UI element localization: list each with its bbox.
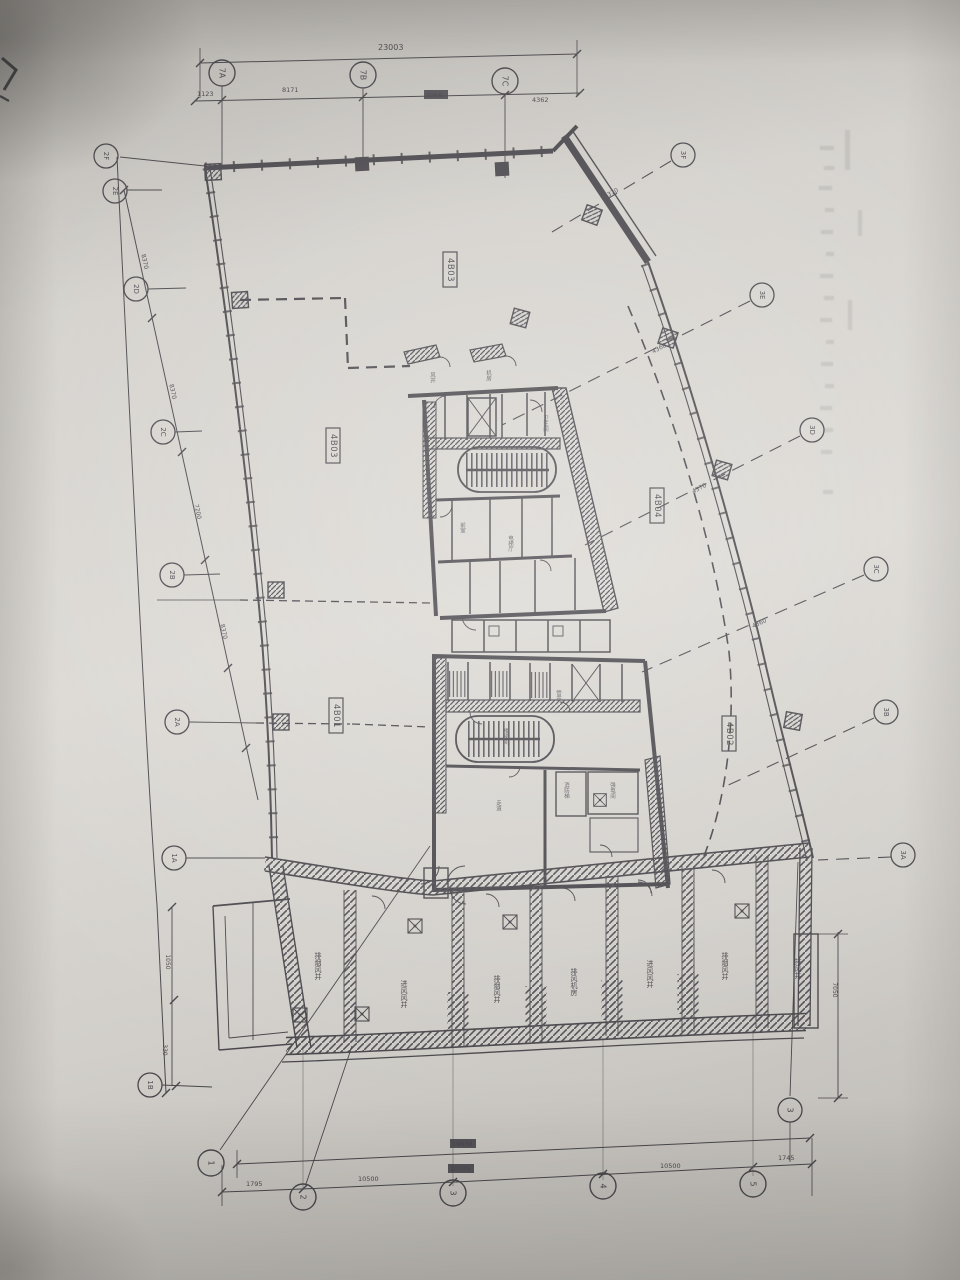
dim-left-2: 8370: [167, 383, 177, 400]
room-label-small: 卫生间: [542, 415, 549, 433]
grid-bubbles-left: 2F 2E 2D 2C 2B 2A 1A 1B: [94, 144, 189, 1097]
zone-label-4b02: 4B02: [724, 722, 734, 746]
grid-label: 3: [786, 1107, 795, 1112]
dim-top-seg3: 9068: [426, 91, 443, 99]
room-label-small: 电梯厅: [507, 534, 514, 552]
grid-label: 3D: [808, 425, 816, 435]
grid-label: 1A: [170, 853, 178, 862]
dim-left-4: 8370: [218, 623, 228, 640]
floor-plan-drawing: 23003 1123 8171 9068 4362 7A 7B 7C 8370 …: [0, 0, 960, 1280]
plant-room-label: 排烟风井: [314, 951, 322, 981]
room-label-small: 前室: [459, 521, 466, 534]
room-label-small: 管井: [555, 689, 562, 703]
dim-bottom-seg3: 10705: [450, 1165, 471, 1173]
grid-label: 5: [749, 1181, 758, 1186]
service-core-upper: 风井 机房 前室 电梯厅 卫生间: [404, 344, 618, 630]
room-label-small: 楼梯间: [502, 727, 509, 746]
dim-right-2: 4360: [651, 342, 668, 355]
plant-room-label: 排烟风井: [493, 974, 501, 1004]
dim-left-v1: 1050: [164, 954, 171, 969]
building-outline: 4370 4360 4370 4360: [205, 126, 891, 861]
plant-room-label: 排风井: [794, 957, 802, 980]
room-label-small: 机房: [485, 369, 492, 383]
dim-bottom-seg2: 10500: [358, 1175, 379, 1183]
dim-bottom-seg4: 10500: [660, 1162, 681, 1170]
room-label-small: 风井: [429, 372, 436, 385]
zone-label-4b01: 4B01: [331, 704, 341, 728]
dim-bottom-seg1: 1795: [246, 1180, 263, 1188]
grid-label: 3F: [679, 151, 687, 159]
plant-room-label: 排烟风井: [721, 951, 729, 981]
plant-room-label: 进风风井: [646, 960, 654, 989]
dim-right-3: 4370: [691, 482, 708, 495]
grid-label: 7C: [501, 76, 510, 87]
plant-room-label: 排风机房: [570, 967, 578, 997]
grid-label: 2E: [111, 187, 119, 196]
grid-label: 4: [599, 1183, 608, 1188]
dim-top-seg1: 1123: [197, 90, 214, 98]
floor-plan-sheet: 23003 1123 8171 9068 4362 7A 7B 7C 8370 …: [0, 0, 960, 1280]
dim-top-seg4: 4362: [532, 96, 549, 104]
dim-left-v2: 330: [161, 1044, 168, 1056]
dim-left-3: 7200: [192, 503, 202, 520]
grid-label: 7B: [359, 70, 368, 81]
dim-bottom-seg5: 1745: [778, 1154, 795, 1162]
room-label-small: 强电间: [609, 782, 616, 800]
grid-label: 2A: [173, 717, 181, 726]
grid-bubbles-top: 7A 7B 7C: [209, 60, 518, 94]
grid-label: 2F: [102, 152, 110, 160]
grid-label: 2C: [159, 427, 167, 436]
dim-top-total: 23003: [378, 43, 403, 52]
grid-label: 1: [207, 1160, 216, 1165]
bleed-through-marks: [819, 130, 862, 494]
dim-right-v1: 7050: [831, 982, 838, 997]
core-corridor-cells: [452, 620, 610, 652]
zone-label-4b03-top: 4B03: [445, 258, 455, 282]
grid-bubbles-bottom: 1 2 3 4 5 3: [198, 1098, 802, 1210]
grid-label: 2D: [132, 284, 140, 294]
grid-label: 2B: [168, 570, 176, 579]
grid-label: 3C: [872, 564, 880, 573]
grid-label: 3A: [899, 850, 907, 859]
page-edge-mark: [0, 58, 16, 101]
dim-top-seg2: 8171: [282, 86, 299, 94]
zone-label-4b03-west: 4B03: [328, 434, 338, 458]
dim-bottom-total: 19938: [452, 1140, 473, 1148]
zone-label-4b04: 4B04: [652, 494, 662, 518]
grid-label: 2: [299, 1194, 308, 1199]
grid-bubbles-right: 3F 3E 3D 3C 3B 3A: [671, 143, 915, 867]
grid-label: 1B: [146, 1080, 154, 1089]
room-label-small: 消防梯: [563, 781, 570, 800]
room-label-small: 走道: [495, 799, 502, 813]
grid-label: 3E: [758, 291, 766, 300]
grid-label: 3: [449, 1190, 458, 1195]
grid-label: 3B: [882, 707, 890, 716]
dim-right-4: 4360: [751, 617, 768, 630]
plant-room-band: 排烟风井 进风风井 排烟风井 排风机房 进风风井 排烟风井 排风井: [265, 843, 818, 1062]
plant-room-label: 进风风井: [400, 980, 408, 1009]
grid-label: 7A: [218, 68, 227, 79]
